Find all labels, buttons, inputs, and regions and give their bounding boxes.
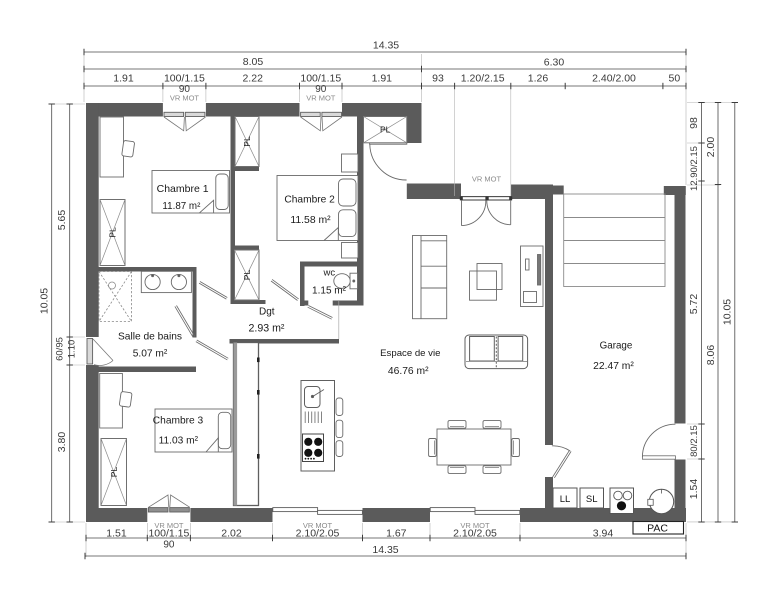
svg-text:VR MOT: VR MOT (303, 521, 333, 530)
svg-text:11.03 m²: 11.03 m² (159, 436, 199, 447)
svg-text:LL: LL (560, 494, 571, 505)
svg-text:VR MOT: VR MOT (472, 175, 502, 184)
svg-text:3.80: 3.80 (56, 432, 68, 453)
svg-text:PAC: PAC (647, 523, 668, 535)
svg-text:98: 98 (688, 117, 700, 129)
svg-text:93: 93 (432, 73, 444, 85)
svg-text:SL: SL (586, 494, 598, 505)
svg-text:100/1.15: 100/1.15 (300, 73, 341, 85)
svg-text:2.00: 2.00 (705, 137, 717, 158)
svg-text:22.47 m²: 22.47 m² (593, 361, 634, 372)
svg-text:Chambre 1: Chambre 1 (157, 183, 209, 195)
svg-text:PL: PL (242, 136, 252, 147)
svg-text:1.26: 1.26 (528, 73, 549, 85)
svg-text:PL: PL (109, 467, 119, 478)
svg-text:2.02: 2.02 (221, 528, 242, 540)
svg-text:1.20/2.15: 1.20/2.15 (461, 73, 505, 85)
svg-text:46.76 m²: 46.76 m² (388, 366, 429, 377)
svg-text:60/95: 60/95 (55, 337, 66, 361)
svg-text:PL: PL (108, 227, 118, 238)
svg-text:90: 90 (163, 540, 175, 551)
svg-text:1.91: 1.91 (372, 73, 393, 85)
svg-text:1.51: 1.51 (106, 528, 127, 540)
svg-text:100/1.15: 100/1.15 (164, 73, 205, 85)
svg-text:5.72: 5.72 (688, 294, 700, 315)
svg-text:8.06: 8.06 (705, 345, 717, 366)
svg-text:14.35: 14.35 (372, 544, 398, 556)
svg-text:VR MOT: VR MOT (154, 521, 184, 530)
svg-text:Garage: Garage (600, 341, 633, 352)
svg-text:1.67: 1.67 (386, 528, 407, 540)
svg-text:PL: PL (380, 125, 391, 135)
svg-text:12.90/2.15: 12.90/2.15 (689, 146, 700, 191)
svg-text:Salle de bains: Salle de bains (118, 332, 182, 343)
svg-text:Chambre 3: Chambre 3 (153, 416, 204, 427)
svg-text:Dgt: Dgt (259, 307, 275, 318)
svg-text:2.40/2.00: 2.40/2.00 (592, 73, 636, 85)
svg-text:50: 50 (669, 73, 681, 85)
svg-text:5.65: 5.65 (56, 210, 68, 231)
svg-text:2.93 m²: 2.93 m² (249, 323, 285, 335)
svg-text:VR MOT: VR MOT (306, 94, 336, 103)
svg-text:1.91: 1.91 (113, 73, 134, 85)
svg-text:80/2.15: 80/2.15 (689, 425, 700, 457)
svg-text:11.58 m²: 11.58 m² (290, 215, 331, 226)
svg-text:1.15 m²: 1.15 m² (312, 286, 347, 297)
svg-text:6.30: 6.30 (544, 57, 565, 69)
svg-text:2.22: 2.22 (242, 73, 263, 85)
svg-text:10.05: 10.05 (39, 288, 51, 314)
svg-text:PL: PL (242, 270, 252, 281)
svg-text:1.54: 1.54 (688, 479, 700, 500)
svg-text:5.07 m²: 5.07 m² (133, 349, 168, 360)
svg-text:1.10: 1.10 (67, 340, 78, 359)
svg-text:wc: wc (322, 268, 335, 279)
svg-text:11.87 m²: 11.87 m² (162, 201, 201, 212)
svg-text:3.94: 3.94 (593, 528, 614, 540)
svg-text:VR MOT: VR MOT (460, 521, 490, 530)
svg-text:14.35: 14.35 (373, 40, 399, 52)
svg-text:VR MOT: VR MOT (170, 94, 200, 103)
svg-text:Espace de vie: Espace de vie (380, 348, 440, 359)
svg-text:8.05: 8.05 (243, 56, 264, 68)
svg-text:10.05: 10.05 (722, 299, 734, 325)
svg-text:Chambre 2: Chambre 2 (284, 195, 335, 206)
